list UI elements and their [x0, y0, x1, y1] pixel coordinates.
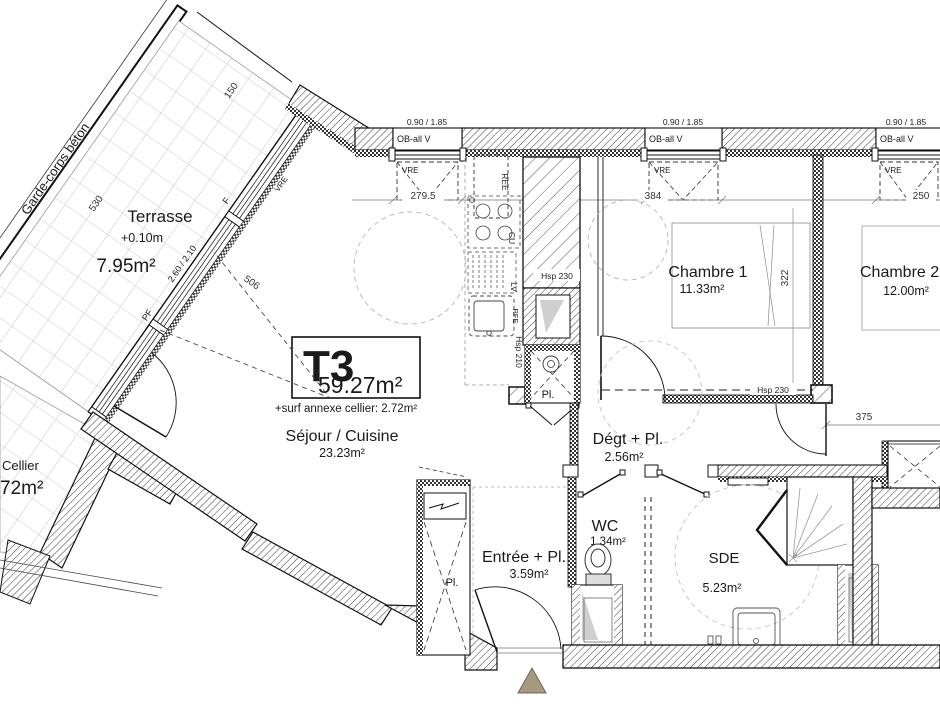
shower [757, 477, 853, 565]
entree-closet: Pl. [417, 467, 470, 655]
svg-text:0.90 / 1.85: 0.90 / 1.85 [886, 117, 926, 127]
sejour-area: 23.23m² [319, 446, 365, 460]
column [811, 385, 832, 403]
title-box: T3 59.27m² [292, 337, 420, 398]
toilet-icon [585, 544, 611, 585]
washbasin [708, 608, 780, 650]
electrical-panel [424, 493, 466, 519]
wc-room: WC 1.34m² [572, 518, 626, 648]
entree-name: Entrée + Pl. [482, 549, 566, 566]
bedroom-divider-wall [811, 155, 832, 403]
terrasse-area: 7.95m² [96, 256, 155, 277]
terrace-door-arc [152, 353, 176, 437]
pl-label-shaft: Pl. [542, 389, 555, 401]
svg-text:VRE: VRE [654, 166, 670, 175]
sde-room: SDE 5.23m² [675, 477, 878, 652]
sde-name: SDE [709, 550, 740, 567]
entree-area: 3.59m² [510, 567, 549, 581]
wc-name: WC [592, 518, 619, 535]
ree-label: REE [500, 173, 510, 191]
chambre1-west-wall [598, 157, 603, 336]
floor-plan-svg: Garde-corps béton 530 150 2.60 / 2.10 F … [0, 0, 940, 705]
hsp210-label: Hsp 210 [514, 336, 524, 368]
svg-text:0.90 / 1.85: 0.90 / 1.85 [663, 117, 703, 127]
sde-area: 5.23m² [703, 581, 742, 595]
cu-label: CU [507, 232, 517, 244]
lv-label: LV [509, 282, 519, 292]
title-area: 59.27m² [318, 372, 403, 398]
turning-circle-sejour [354, 212, 466, 324]
dim-bay1: 279.5 [410, 191, 435, 202]
title-annex: +surf annexe cellier: 2.72m² [275, 403, 417, 415]
chambre2-closet [882, 441, 940, 490]
wc-duct [572, 585, 622, 648]
drainboard [468, 252, 516, 293]
sejour-name: Séjour / Cuisine [286, 428, 399, 445]
window-2: 0.90 / 1.85 OB-all V VRE [641, 117, 726, 200]
sde-door [657, 470, 709, 497]
window-lintel-label: OB-all V [397, 134, 431, 144]
dim-chambre1-depth: 322 [780, 269, 791, 286]
rfe-label: RFE [511, 309, 520, 324]
terrasse-name: Terrasse [127, 207, 192, 226]
dim-corridor: 375 [856, 412, 873, 423]
hsp230-label-1: Hsp 230 [757, 385, 789, 395]
degagement-name: Dégt + Pl. [593, 431, 664, 448]
vent-icon [543, 356, 559, 372]
cellier-area: 72m² [0, 478, 43, 499]
wc-door [578, 470, 625, 497]
terrasse-level: +0.10m [121, 231, 163, 245]
degagement-area: 2.56m² [605, 450, 644, 464]
turning-circle-degt [598, 341, 702, 445]
chambre1: Chambre 1 11.33m² [588, 200, 810, 328]
window-size-label: 0.90 / 1.85 [407, 117, 447, 127]
window-1: 0.90 / 1.85 OB-all V VRE [389, 117, 466, 200]
entry-marker-icon [518, 668, 546, 693]
sink [469, 296, 514, 336]
svg-text:VRE: VRE [885, 166, 901, 175]
dim-bay2: 384 [645, 191, 662, 202]
dim-sejour-depth: 506 [241, 274, 261, 293]
chambre1-name: Chambre 1 [668, 264, 747, 281]
kitchen-zone: REE CU LV RFE Hsp 210 [465, 155, 525, 404]
chambre2: Chambre 2 + 12.00m² [860, 226, 940, 490]
dim-bay3: 250 [913, 191, 930, 202]
window-shutter-label: VRE [402, 166, 418, 175]
chambre1-south-wall: Hsp 230 [602, 383, 813, 403]
turning-circle-ch1 [588, 200, 668, 280]
chambre2-name: Chambre 2 + [860, 264, 940, 281]
shower-door [757, 490, 787, 565]
chambre2-door [776, 404, 826, 456]
svg-text:OB-all V: OB-all V [649, 134, 683, 144]
pl-label-entree: Pl. [446, 577, 459, 589]
kitchen-column [509, 387, 525, 404]
radiator [728, 478, 768, 485]
floor-plan: Garde-corps béton 530 150 2.60 / 2.10 F … [0, 0, 940, 705]
window-3: 0.90 / 1.85 OB-all V VRE [872, 117, 940, 200]
chambre2-area: 12.00m² [883, 284, 929, 298]
hsp230-label-2: Hsp 230 [541, 271, 573, 281]
chambre1-area: 11.33m² [680, 282, 725, 296]
svg-text:OB-all V: OB-all V [880, 134, 914, 144]
cellier-name: Cellier [2, 458, 40, 473]
technical-shaft: Hsp 230 [523, 157, 580, 345]
